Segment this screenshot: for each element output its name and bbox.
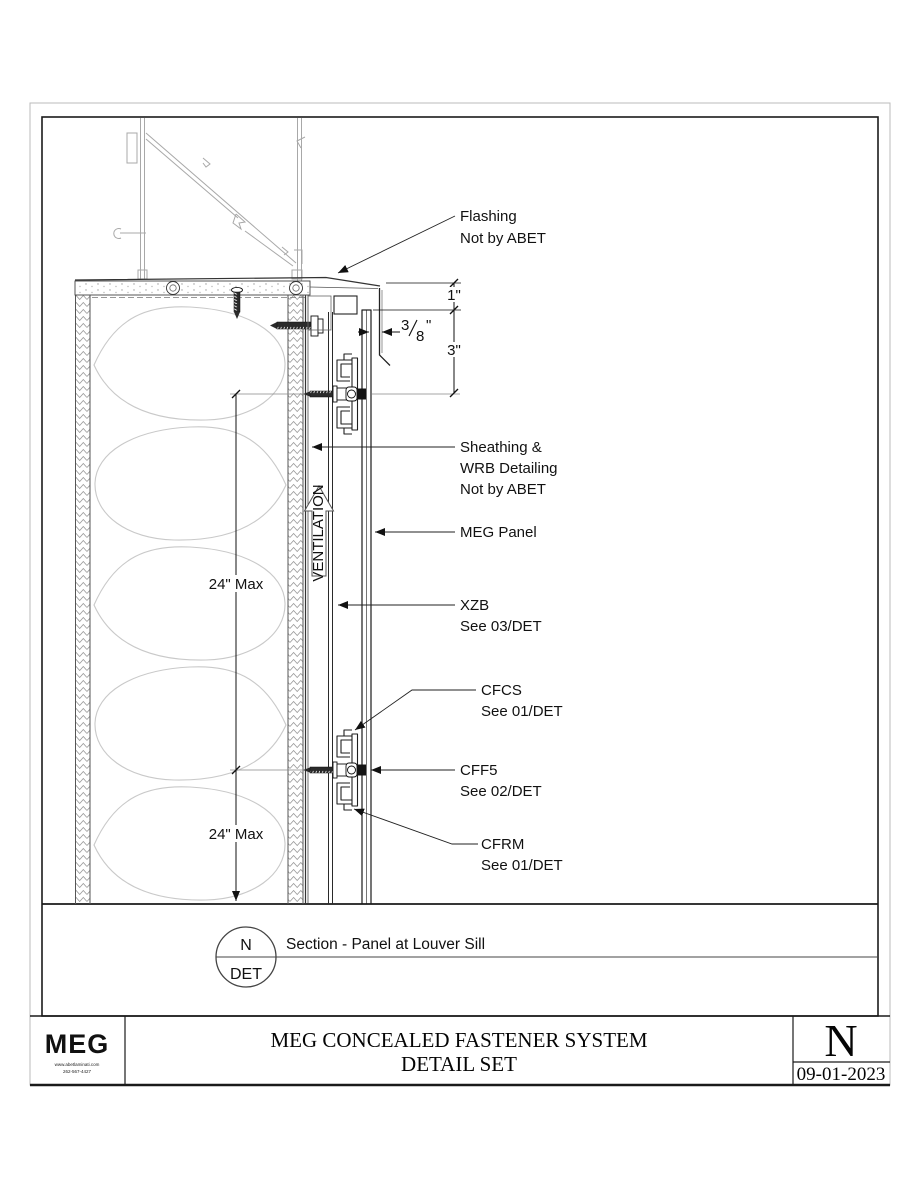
label-cff5-2: See 02/DET xyxy=(460,783,542,800)
label-cfcs-2: See 01/DET xyxy=(481,703,563,720)
drawing-sheet: VENTILATION 1" 3" 3 8 " 24" Max xyxy=(0,0,919,1190)
cfcs-hook xyxy=(337,360,352,381)
drawing-border xyxy=(42,117,878,1016)
xzb-girt xyxy=(329,312,333,904)
sheet-number: N xyxy=(824,1015,857,1066)
label-flashing-2: Not by ABET xyxy=(460,230,546,247)
ventilation-label: VENTILATION xyxy=(310,484,327,581)
sill-closure xyxy=(334,296,357,314)
titleblock: MEG www.abetlaminati.com 262-567-4427 ME… xyxy=(30,1015,890,1085)
cfrm-hook xyxy=(337,407,352,428)
fastener-screw-lower xyxy=(303,762,366,778)
titleblock-title-2: DETAIL SET xyxy=(401,1052,517,1076)
ventilation-arrow: VENTILATION xyxy=(305,484,334,581)
backer-rod xyxy=(290,282,303,295)
callout-number: N xyxy=(240,937,252,954)
label-sheathing-3: Not by ABET xyxy=(460,481,546,498)
panel-nut xyxy=(357,389,366,400)
meg-logo-url: www.abetlaminati.com xyxy=(55,1062,100,1067)
dim-three-eighths: 3 8 " xyxy=(358,317,431,345)
dim-24max-upper: 24" Max xyxy=(209,576,264,593)
louver-sill-assembly xyxy=(75,281,357,336)
cfcs-hook xyxy=(337,736,352,757)
label-sheathing-2: WRB Detailing xyxy=(460,460,558,477)
callout-title: Section - Panel at Louver Sill xyxy=(286,936,485,953)
label-sheathing-1: Sheathing & xyxy=(460,439,542,456)
cfrm-hook xyxy=(337,783,352,804)
dim-24in-max: 24" Max 24" Max xyxy=(206,390,266,901)
callout-sheet: DET xyxy=(230,966,262,983)
meg-logo: MEG www.abetlaminati.com 262-567-4427 xyxy=(45,1029,110,1074)
meg-logo-text: MEG xyxy=(45,1029,110,1059)
leader-cfcs xyxy=(355,690,476,730)
label-meg-panel: MEG Panel xyxy=(460,524,537,541)
batt-insulation xyxy=(94,307,286,900)
dim-24max-lower: 24" Max xyxy=(209,826,264,843)
label-cfrm-2: See 01/DET xyxy=(481,857,563,874)
titleblock-title-1: MEG CONCEALED FASTENER SYSTEM xyxy=(270,1028,647,1052)
fastener-screw-upper xyxy=(303,386,366,402)
label-cfcs-1: CFCS xyxy=(481,682,522,699)
panel-nut xyxy=(357,765,366,776)
interior-finish-strip xyxy=(76,295,91,904)
blade-stiffener xyxy=(233,214,245,229)
louver-frame xyxy=(114,118,305,281)
dim-3in: 3" xyxy=(447,342,461,359)
dim-1in: 1" xyxy=(447,287,461,304)
annotation-labels: Flashing Not by ABET Sheathing & WRB Det… xyxy=(460,208,563,874)
callout-bubble: N DET Section - Panel at Louver Sill xyxy=(216,927,878,987)
label-cfrm-1: CFRM xyxy=(481,836,524,853)
flashing-drip-leg xyxy=(380,288,391,366)
sheathing-strip xyxy=(288,295,303,904)
sheet-date: 09-01-2023 xyxy=(797,1064,886,1085)
detail-drawing-sheet: VENTILATION 1" 3" 3 8 " 24" Max xyxy=(0,0,919,1190)
backer-rod xyxy=(167,282,180,295)
label-cff5-1: CFF5 xyxy=(460,762,498,779)
dim-frac-num: 3 xyxy=(401,317,409,334)
dim-frac-unit: " xyxy=(426,317,431,334)
label-xzb-1: XZB xyxy=(460,597,489,614)
label-flashing-1: Flashing xyxy=(460,208,517,225)
meg-logo-phone: 262-567-4427 xyxy=(63,1069,92,1074)
label-xzb-2: See 03/DET xyxy=(460,618,542,635)
leader-flashing xyxy=(338,216,455,273)
dim-frac-den: 8 xyxy=(416,328,424,345)
wrb-line xyxy=(306,295,309,904)
leader-cfrm xyxy=(354,809,478,844)
